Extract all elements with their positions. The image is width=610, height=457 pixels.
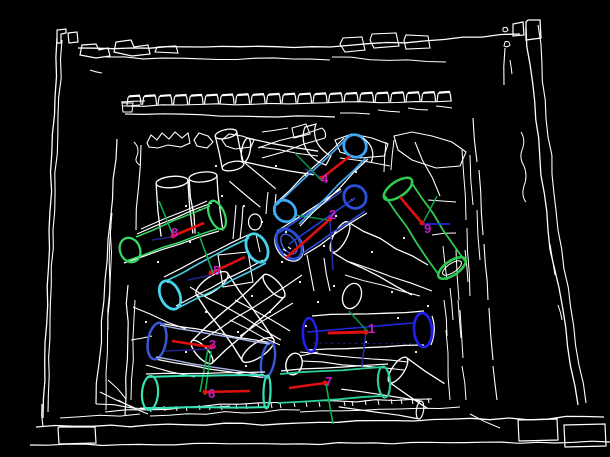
svg-text:7: 7	[325, 374, 332, 389]
svg-text:1: 1	[368, 321, 375, 336]
svg-text:3: 3	[209, 337, 216, 352]
svg-text:4: 4	[321, 171, 329, 186]
svg-text:2: 2	[329, 207, 336, 222]
svg-text:9: 9	[424, 221, 431, 236]
svg-text:5: 5	[213, 263, 220, 278]
svg-text:8: 8	[171, 225, 178, 240]
svg-text:6: 6	[208, 386, 215, 401]
